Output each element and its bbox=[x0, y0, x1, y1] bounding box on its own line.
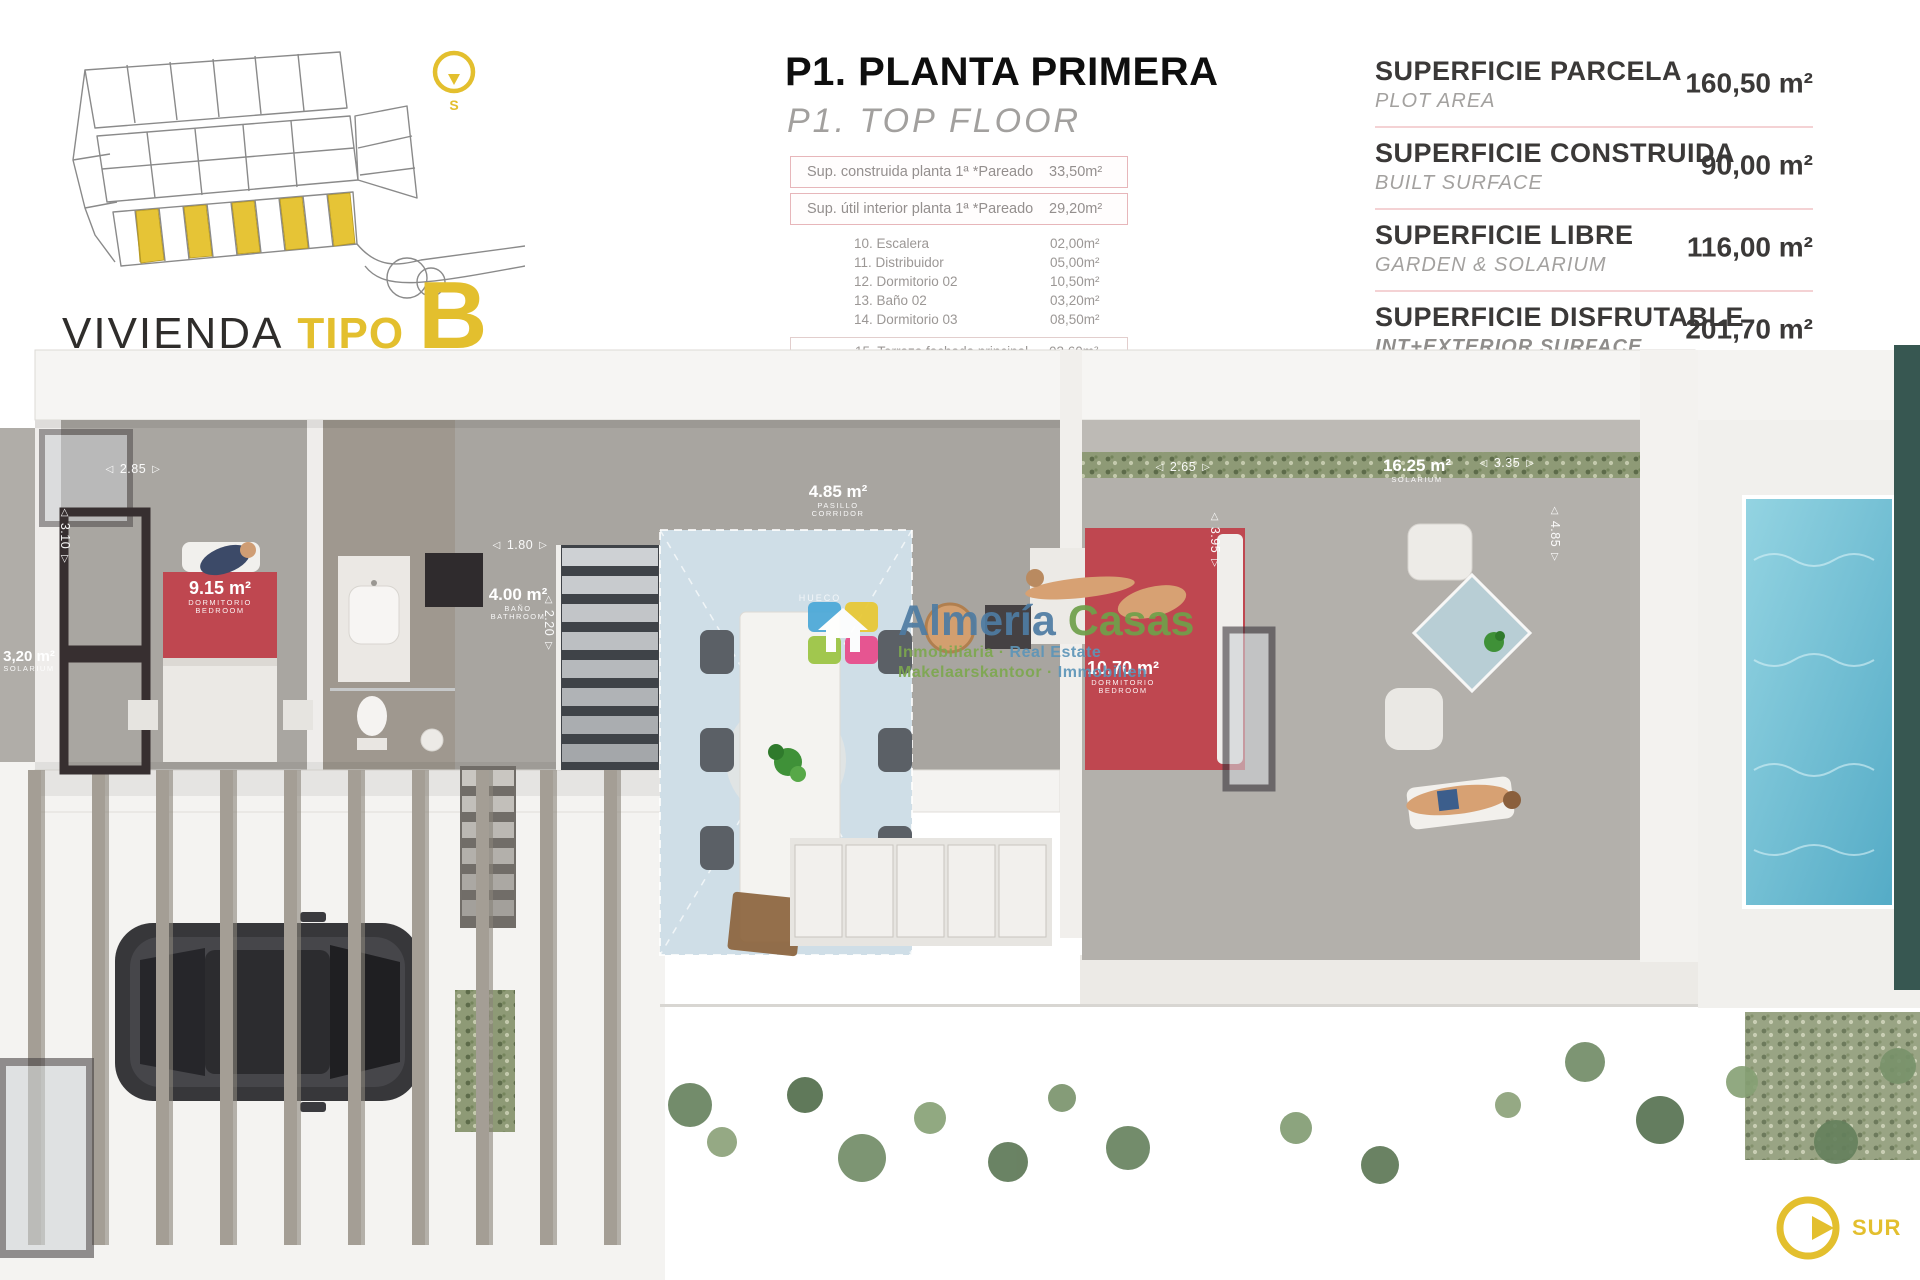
floor-plan-render bbox=[0, 345, 1920, 1280]
table-row: 14. Dormitorio 03 08,50m² bbox=[790, 310, 1128, 329]
watermark: Almería Casas Inmobiliaria · Real Estate… bbox=[806, 600, 1194, 683]
dim-arrow-right-icon: ▷ bbox=[152, 464, 160, 475]
row-label: Sup. construida planta 1ª *Pareado bbox=[791, 164, 1049, 180]
room-name: SOLARIUM bbox=[0, 665, 64, 674]
glass-window bbox=[1226, 630, 1272, 788]
room-area: 4.00 m² bbox=[462, 585, 574, 605]
dim-value: 2.20 bbox=[542, 610, 556, 636]
table-row: 10. Escalera 02,00m² bbox=[790, 234, 1128, 253]
dim-value: 2.85 bbox=[120, 462, 146, 476]
tagline-word: Inmobiliaria · bbox=[898, 644, 1005, 661]
pool-area bbox=[1698, 345, 1920, 1160]
room-area: 9.15 m² bbox=[165, 578, 275, 599]
variant-letter: B bbox=[418, 278, 487, 355]
bushes bbox=[668, 1042, 1916, 1184]
page-subtitle: P1. TOP FLOOR bbox=[787, 102, 1081, 141]
glass-door bbox=[2, 1062, 90, 1254]
page-title: P1. PLANTA PRIMERA bbox=[785, 50, 1218, 95]
row-label: Sup. útil interior planta 1ª *Pareado bbox=[791, 201, 1049, 217]
dim-value: 1.80 bbox=[507, 538, 533, 552]
summary-row: SUPERFICIE PARCELA PLOT AREA 160,50 m² bbox=[1375, 46, 1813, 128]
surface-summary: SUPERFICIE PARCELA PLOT AREA 160,50 m² S… bbox=[1375, 46, 1813, 372]
shower-head bbox=[421, 729, 443, 751]
row-value: 02,00m² bbox=[1050, 236, 1128, 251]
dim-value: 4.85 bbox=[1548, 521, 1562, 547]
room-name-en: BATHROOM bbox=[462, 613, 574, 622]
dim-arrow-right-icon: ▷ bbox=[60, 555, 71, 563]
room-label-bedroom-1: 9.15 m² DORMITORIO BEDROOM bbox=[165, 578, 275, 616]
summary-row: SUPERFICIE LIBRE GARDEN & SOLARIUM 116,0… bbox=[1375, 210, 1813, 292]
closet-doors bbox=[795, 845, 1046, 937]
dimension: ◁ 2.85 ▷ bbox=[78, 462, 188, 476]
dimension: ◁ 1.80 ▷ bbox=[470, 538, 570, 552]
lounge-chair bbox=[1408, 524, 1472, 580]
brand-logo-icon bbox=[806, 600, 880, 666]
room-name-en: CORRIDOR bbox=[782, 510, 894, 519]
compass-letter: S bbox=[449, 97, 458, 113]
dim-arrow-left-icon: ◁ bbox=[544, 596, 555, 604]
brand-tagline-2: Makelaarskantoor · Immobilien bbox=[898, 663, 1194, 683]
dim-arrow-left-icon: ◁ bbox=[1550, 507, 1561, 515]
summary-value: 160,50 m² bbox=[1685, 67, 1813, 99]
row-value: 10,50m² bbox=[1050, 274, 1128, 289]
dimension: ◁ 3.35 ▷ bbox=[1455, 456, 1559, 470]
south-compass: SUR bbox=[1772, 1192, 1901, 1264]
row-value: 33,50m² bbox=[1049, 164, 1127, 180]
row-label: 12. Dormitorio 02 bbox=[790, 274, 1050, 289]
south-label: SUR bbox=[1852, 1215, 1901, 1241]
toilet bbox=[357, 696, 387, 736]
room-area: 4.85 m² bbox=[782, 482, 894, 502]
dimension: ◁ 4.85 ▷ bbox=[1548, 486, 1562, 582]
row-value: 29,20m² bbox=[1049, 201, 1127, 217]
row-value: 03,20m² bbox=[1050, 293, 1128, 308]
row-label: 10. Escalera bbox=[790, 236, 1050, 251]
tagline-word: Makelaarskantoor · bbox=[898, 664, 1053, 681]
tagline-word: Immobilien bbox=[1053, 664, 1147, 681]
south-arrow-icon bbox=[1772, 1192, 1844, 1264]
table-row: Sup. útil interior planta 1ª *Pareado 29… bbox=[790, 193, 1128, 225]
north-compass-icon: S bbox=[435, 53, 473, 113]
dim-arrow-left-icon: ◁ bbox=[1210, 513, 1221, 521]
row-value: 05,00m² bbox=[1050, 255, 1128, 270]
room-name-en: BEDROOM bbox=[165, 607, 275, 616]
table-row: Sup. construida planta 1ª *Pareado 33,50… bbox=[790, 156, 1128, 188]
dim-arrow-right-icon: ▷ bbox=[1202, 462, 1210, 473]
row-label: 13. Baño 02 bbox=[790, 293, 1050, 308]
dim-arrow-right-icon: ▷ bbox=[1526, 458, 1534, 469]
tagline-word: Real Estate bbox=[1005, 644, 1102, 661]
room-label-corridor: 4.85 m² PASILLO CORRIDOR bbox=[782, 482, 894, 519]
dim-arrow-right-icon: ▷ bbox=[544, 642, 555, 650]
table-row: 11. Distribuidor 05,00m² bbox=[790, 253, 1128, 272]
summary-value: 116,00 m² bbox=[1687, 231, 1813, 263]
brand-name: Almería Casas bbox=[898, 600, 1194, 643]
dimension: ◁ 2.65 ▷ bbox=[1128, 460, 1238, 474]
dim-arrow-right-icon: ▷ bbox=[539, 540, 547, 551]
row-value: 08,50m² bbox=[1050, 312, 1128, 327]
dim-value: 3.10 bbox=[58, 523, 72, 549]
room-area: 3,20 m² bbox=[0, 648, 64, 665]
dim-arrow-left-icon: ◁ bbox=[1156, 462, 1164, 473]
dim-arrow-left-icon: ◁ bbox=[60, 509, 71, 517]
stairs bbox=[556, 545, 664, 770]
dim-arrow-right-icon: ▷ bbox=[1210, 559, 1221, 567]
room-label-bathroom: 4.00 m² BAÑO BATHROOM bbox=[462, 585, 574, 622]
summary-row: SUPERFICIE CONSTRUIDA BUILT SURFACE 90,0… bbox=[1375, 128, 1813, 210]
highlighted-plots bbox=[136, 193, 355, 263]
dim-arrow-left-icon: ◁ bbox=[106, 464, 114, 475]
dim-value: 3.35 bbox=[1494, 456, 1520, 470]
dimension: ◁ 3.95 ▷ bbox=[1208, 492, 1222, 588]
summary-value: 90,00 m² bbox=[1701, 149, 1813, 181]
brochure-page: S VIVIENDA TIPO B P1. PLANTA PRIMERA P1.… bbox=[0, 0, 1920, 1280]
table-row: 13. Baño 02 03,20m² bbox=[790, 291, 1128, 310]
dim-arrow-left-icon: ◁ bbox=[493, 540, 501, 551]
brand-word-2: Casas bbox=[1068, 597, 1195, 645]
dim-arrow-right-icon: ▷ bbox=[1550, 553, 1561, 561]
summary-value: 201,70 m² bbox=[1685, 313, 1813, 345]
dimension: ◁ 3.10 ▷ bbox=[58, 488, 72, 584]
row-label: 11. Distribuidor bbox=[790, 255, 1050, 270]
room-label-solarium-left: 3,20 m² SOLARIUM bbox=[0, 648, 64, 674]
brand-tagline-1: Inmobiliaria · Real Estate bbox=[898, 643, 1194, 663]
lounge-chair bbox=[1385, 688, 1443, 750]
table-row: 12. Dormitorio 02 10,50m² bbox=[790, 272, 1128, 291]
dim-value: 2.65 bbox=[1170, 460, 1196, 474]
dimension: ◁ 2.20 ▷ bbox=[542, 578, 556, 668]
row-label: 14. Dormitorio 03 bbox=[790, 312, 1050, 327]
room-name-en: BEDROOM bbox=[1063, 687, 1183, 696]
dim-arrow-left-icon: ◁ bbox=[1480, 458, 1488, 469]
dim-value: 3.95 bbox=[1208, 527, 1222, 553]
room-list: 10. Escalera 02,00m² 11. Distribuidor 05… bbox=[790, 234, 1128, 329]
brand-word-1: Almería bbox=[898, 597, 1056, 645]
room-name: SOLARIUM bbox=[1352, 476, 1482, 485]
